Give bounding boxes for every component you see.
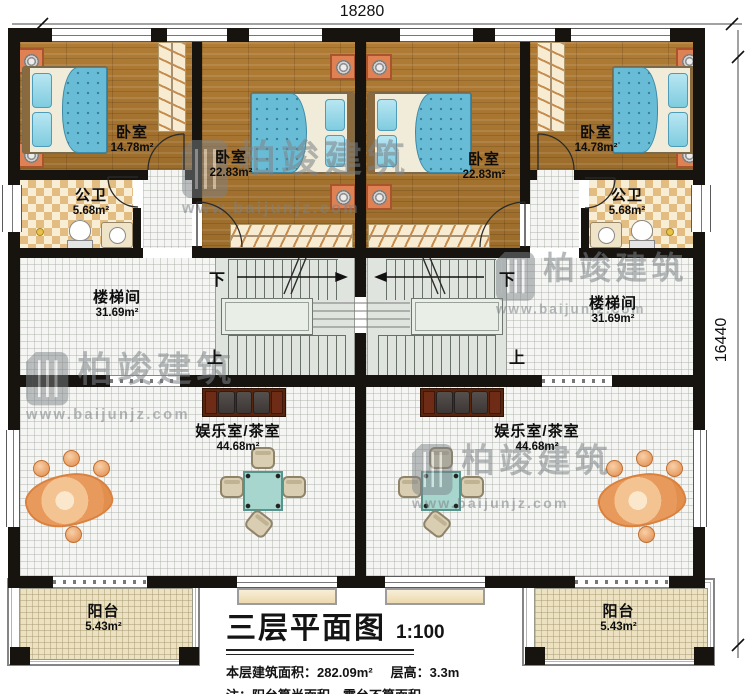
pillows (32, 73, 52, 147)
plan-scale: 1:100 (396, 622, 445, 644)
stair-up-label-right: 上 (506, 344, 528, 368)
staircase-right (367, 255, 507, 376)
floor-height-text: 层高：3.3m (391, 662, 460, 681)
sofa-right (420, 388, 504, 417)
floor-plan-canvas: 阳台 5.43m² 阳台 5.43m² (0, 0, 750, 694)
pillows (668, 73, 688, 147)
window (167, 28, 227, 42)
room-label-balcony-right: 阳台 5.43m² (524, 604, 713, 634)
stair-down-label-right: 下 (496, 266, 518, 290)
side-table (423, 391, 435, 414)
tea-table-set-left (220, 445, 306, 541)
chair (243, 508, 275, 540)
wall-party-lower (355, 333, 366, 576)
wall (574, 170, 703, 180)
chair (220, 476, 244, 498)
balcony-left: 阳台 5.43m² (7, 578, 200, 666)
room-label-tearoom-right: 娱乐室/茶室 44.68m² (462, 424, 612, 454)
staircase-left (215, 255, 355, 376)
wall (366, 375, 542, 387)
floor-area-text: 本层建筑面积：282.09m² (226, 662, 373, 681)
chair (421, 508, 453, 540)
pouf (63, 450, 80, 467)
nightstand (330, 54, 356, 80)
floor-drain (666, 228, 674, 236)
window (571, 28, 670, 42)
wall (581, 170, 589, 178)
window (400, 28, 473, 42)
side-table (489, 391, 501, 414)
stair-treads (378, 335, 496, 376)
dimension-right: 16440 (713, 310, 733, 370)
brand-logo-icon (26, 352, 68, 405)
toilet (628, 220, 656, 250)
closet (158, 42, 186, 132)
pouf (33, 460, 50, 477)
room-label-bedroom-small-right: 卧室 14.78m² (536, 125, 656, 155)
stair-down-label-left: 下 (206, 266, 228, 290)
pouf (93, 460, 110, 477)
rug-blob (22, 468, 116, 532)
stair-treads (228, 335, 346, 376)
nightstand (366, 54, 392, 80)
closet (537, 42, 565, 132)
pouf (636, 450, 653, 467)
wall (10, 170, 148, 180)
room-label-bathroom-left: 公卫 5.68m² (41, 188, 141, 218)
pouf (666, 460, 683, 477)
stair-up-label-left: 上 (204, 344, 226, 368)
window (52, 28, 151, 42)
pouf (638, 526, 655, 543)
dimension-top: 18280 (332, 3, 392, 21)
room-label-stairwell-right: 楼梯间 31.69m² (553, 296, 673, 326)
title-block: 三层平面图 1:100 本层建筑面积：282.09m² 层高：3.3m 注：阳台… (226, 603, 526, 694)
wardrobe (368, 224, 490, 248)
window (495, 28, 555, 42)
stair-landing (221, 298, 313, 335)
watermark-url: www.baijunjz.com (412, 497, 613, 513)
balcony-post (694, 647, 714, 665)
room-label-bathroom-right: 公卫 5.68m² (577, 188, 677, 218)
room-label-stairwell-left: 楼梯间 31.69m² (57, 290, 177, 320)
tea-table (243, 471, 283, 511)
watermark-url: www.baijunjz.com (26, 407, 236, 424)
balcony-right: 阳台 5.43m² (522, 578, 715, 666)
wall (612, 375, 703, 387)
balcony-post (525, 647, 545, 665)
window (249, 28, 322, 42)
toilet (66, 220, 94, 250)
window (2, 185, 22, 232)
window (691, 185, 711, 232)
room-label-balcony-left: 阳台 5.43m² (9, 604, 198, 634)
stair-treads (228, 259, 338, 300)
window (693, 430, 707, 527)
watermark: 柏竣建筑 www.baijunjz.com (412, 444, 613, 513)
floor-hall-right (530, 170, 579, 248)
watermark-url: www.baijunjz.com (182, 200, 410, 218)
side-table (271, 391, 283, 414)
plan-title: 三层平面图 (226, 603, 386, 647)
wardrobe (230, 224, 353, 248)
room-label-bedroom-large-left: 卧室 22.83m² (171, 150, 291, 180)
balcony-post (179, 647, 199, 665)
rug-left (25, 448, 115, 543)
window (385, 576, 485, 588)
wall (10, 248, 143, 258)
window (6, 430, 20, 527)
balcony-post (10, 647, 30, 665)
room-label-bedroom-large-right: 卧室 22.83m² (424, 152, 544, 182)
wall (192, 248, 355, 258)
room-label-tearoom-left: 娱乐室/茶室 44.68m² (163, 424, 313, 454)
headboard (23, 67, 30, 153)
sliding-door-balcony-right (575, 576, 669, 588)
watermark-brand: 柏竣建筑 (543, 252, 687, 287)
brand-logo-icon (412, 444, 452, 495)
plan-note: 注：阳台算半面积，露台不算面积 (226, 685, 526, 694)
floor-drain (36, 228, 44, 236)
sliding-door-balcony-left (53, 576, 147, 588)
window (237, 576, 337, 588)
sink (101, 222, 133, 248)
sink (590, 222, 622, 248)
title-underline (226, 649, 414, 655)
chair (282, 476, 306, 498)
wall (133, 170, 141, 178)
sliding-door-tearoom-right (542, 375, 612, 387)
stair-landing (411, 298, 503, 335)
pouf (65, 526, 82, 543)
stair-treads (386, 259, 496, 300)
